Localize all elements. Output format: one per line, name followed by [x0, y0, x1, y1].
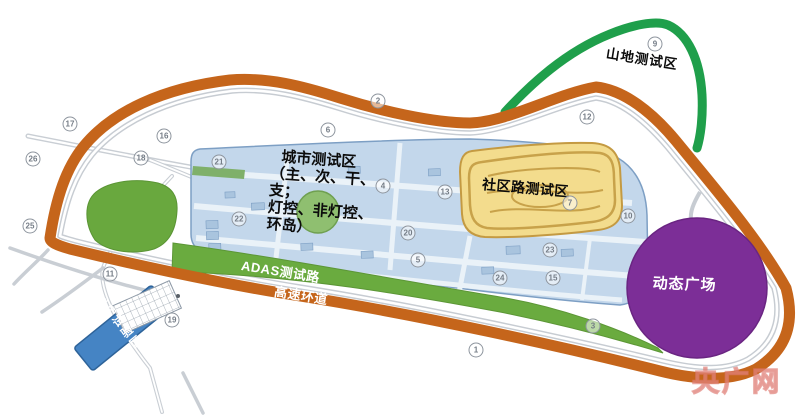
map-canvas: [0, 0, 798, 416]
green-zone: [87, 181, 177, 252]
test-track-map: 山地测试区 城市测试区 （主、次、干、 支； 灯控、非灯控、 环岛） 社区路测试…: [0, 0, 798, 416]
community-road-test-area: [460, 143, 622, 237]
roundabout: [297, 191, 339, 233]
map-dot: [176, 294, 180, 298]
dynamic-plaza: [627, 218, 767, 358]
